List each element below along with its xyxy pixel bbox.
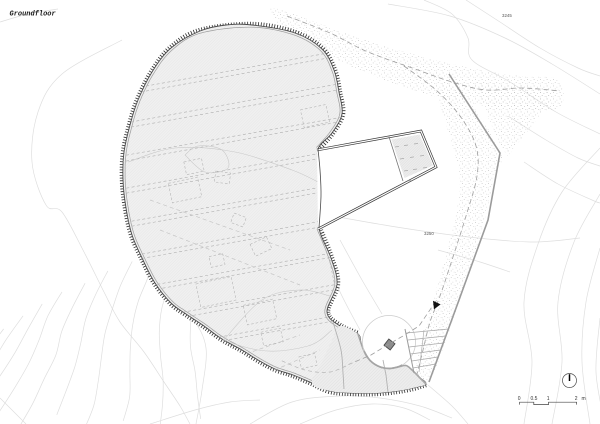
svg-text:1: 1 xyxy=(547,396,550,402)
svg-text:0.5: 0.5 xyxy=(531,396,538,402)
svg-text:0: 0 xyxy=(518,396,521,402)
svg-text:Groundfloor: Groundfloor xyxy=(10,11,57,19)
svg-text:3245: 3245 xyxy=(502,13,512,18)
svg-text:3250: 3250 xyxy=(424,231,434,236)
svg-text:m: m xyxy=(582,396,586,402)
svg-text:2: 2 xyxy=(575,396,578,402)
